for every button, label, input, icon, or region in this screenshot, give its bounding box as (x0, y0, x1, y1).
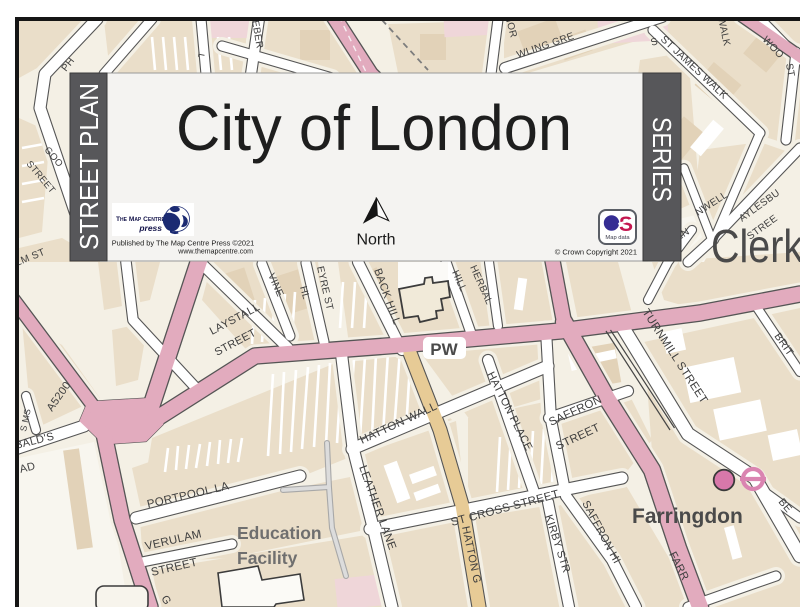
svg-text:PW: PW (430, 340, 458, 359)
svg-text:Farringdon: Farringdon (632, 505, 743, 528)
svg-text:City of London: City of London (176, 92, 572, 164)
svg-text:North: North (356, 232, 395, 249)
svg-text:THE MAP CENTRE: THE MAP CENTRE (116, 216, 165, 223)
svg-text:STREET PLAN: STREET PLAN (74, 83, 104, 250)
svg-text:S: S (619, 213, 633, 236)
svg-text:press: press (138, 223, 162, 233)
svg-text:Education: Education (237, 523, 322, 543)
svg-text:© Crown Copyright 2021: © Crown Copyright 2021 (555, 248, 637, 257)
svg-text:ST: ST (783, 63, 796, 78)
svg-text:Facility: Facility (237, 548, 298, 568)
svg-text:SERIES: SERIES (647, 117, 677, 202)
svg-text:Published by The Map Centre Pr: Published by The Map Centre Press ©2021 (112, 239, 255, 248)
svg-text:Map data: Map data (605, 235, 630, 241)
svg-text:www.themapcentre.com: www.themapcentre.com (177, 249, 253, 256)
svg-text:Clerke: Clerke (711, 220, 800, 272)
